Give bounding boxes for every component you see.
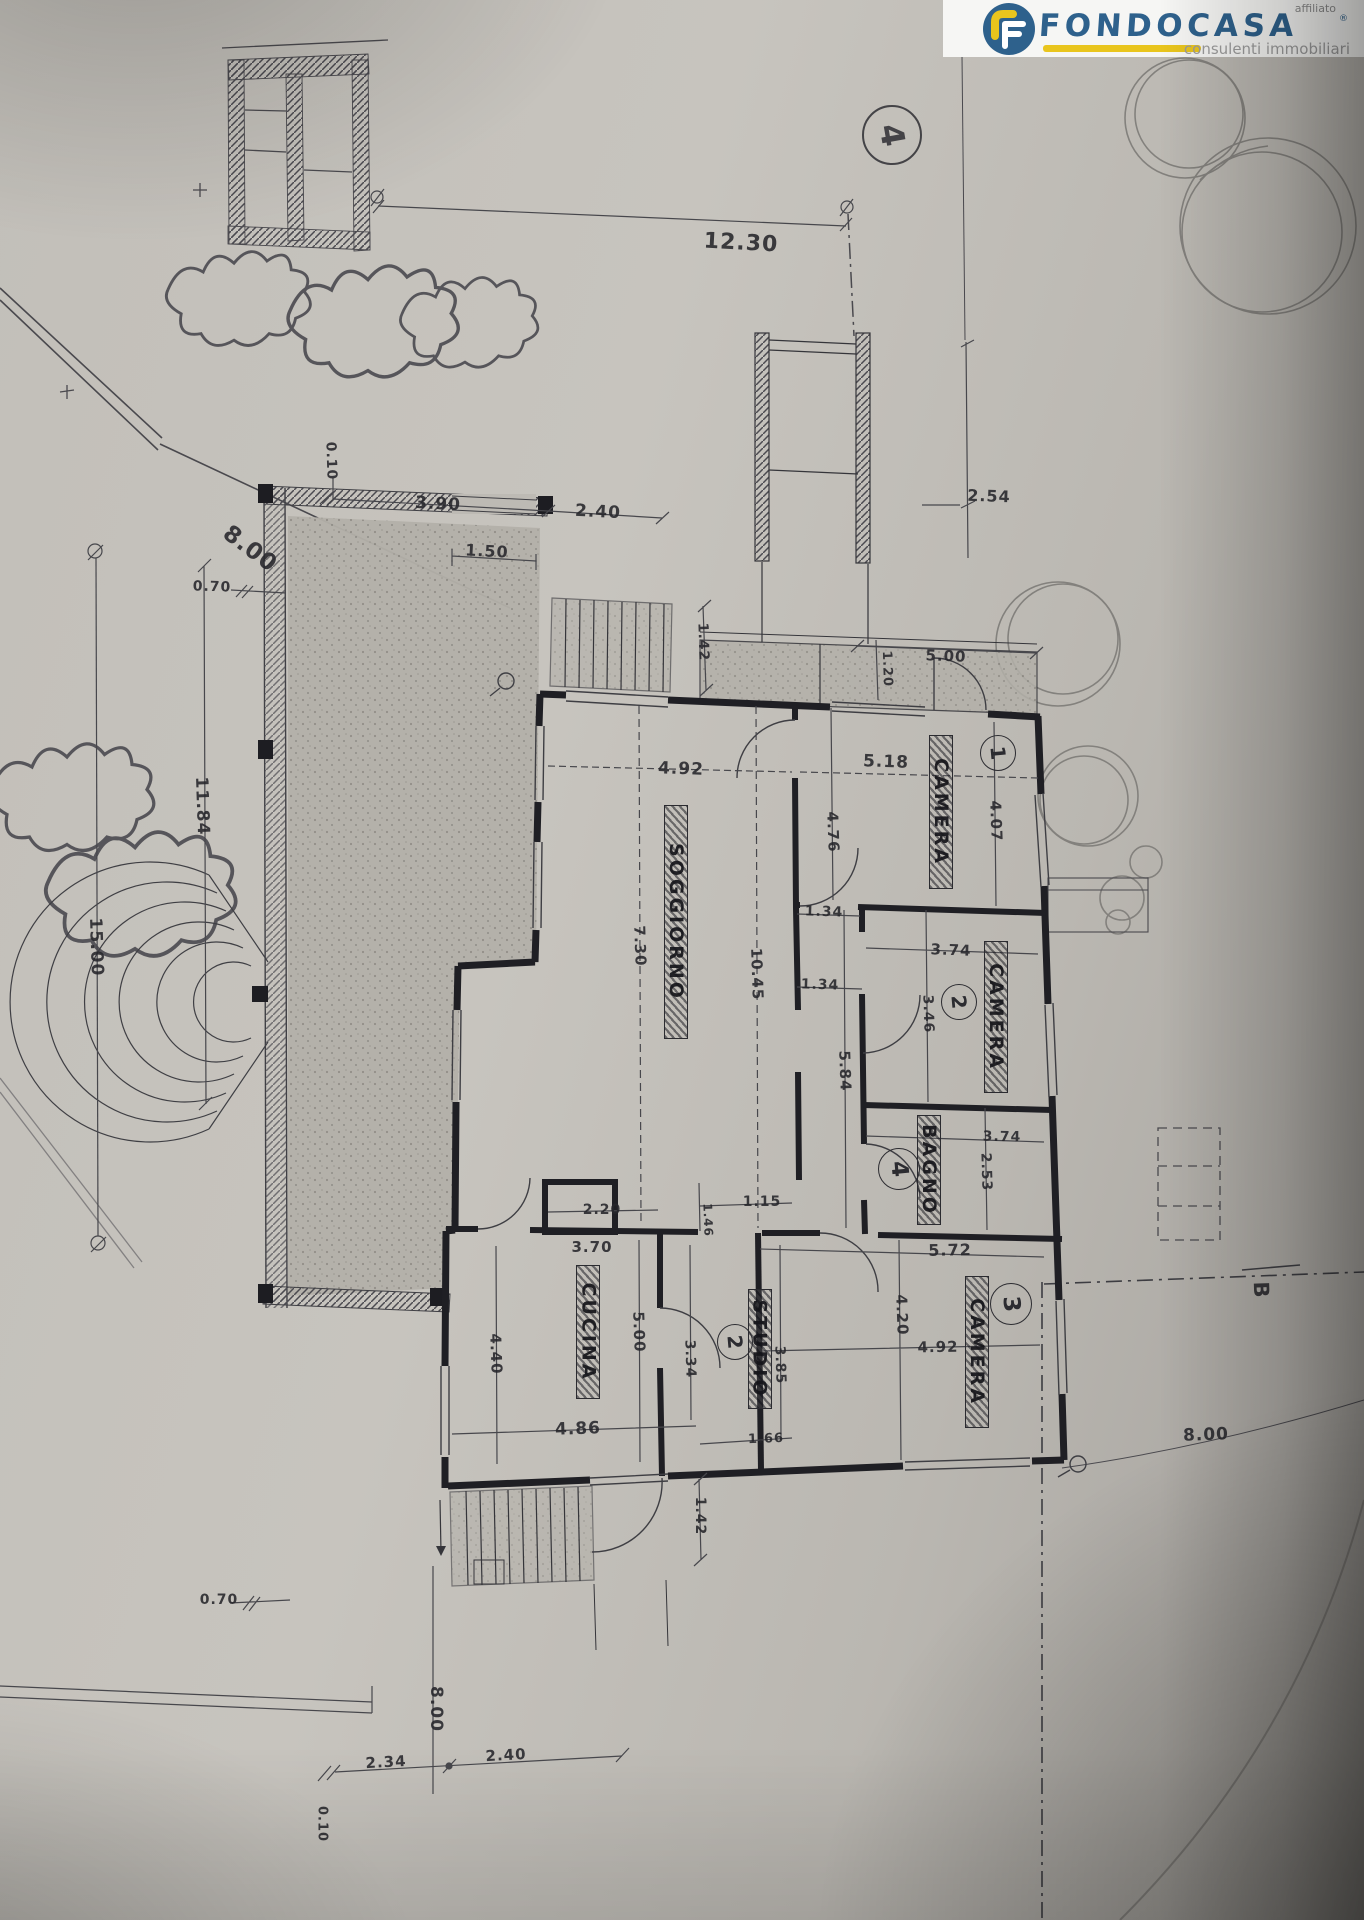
dimension-label: 4.92 bbox=[917, 1338, 958, 1357]
boundary-lines bbox=[0, 56, 965, 608]
dimension-label: 4.92 bbox=[658, 758, 705, 780]
dimension-label: 8.00 bbox=[1183, 1424, 1230, 1446]
dimension-label: 1.42 bbox=[692, 1497, 708, 1536]
terrace-floor bbox=[288, 516, 540, 1296]
room-label: CUCINA bbox=[576, 1265, 600, 1399]
dimension-label: 0.70 bbox=[192, 578, 231, 595]
balcony-outline bbox=[1048, 878, 1148, 932]
dimension-label: 3.85 bbox=[771, 1345, 788, 1384]
curved-stairs bbox=[10, 862, 268, 1142]
door-swing-south bbox=[592, 1478, 662, 1552]
room-label: CAMERA bbox=[965, 1276, 989, 1428]
room-number-mark: 4 bbox=[878, 1148, 920, 1190]
section-line-B bbox=[1042, 1265, 1364, 1920]
room-label: CAMERA bbox=[984, 941, 1008, 1093]
dimension-label: 8.00 bbox=[426, 1686, 446, 1732]
sheet-number: 4 bbox=[871, 121, 912, 150]
door-swing-soggiorno bbox=[737, 720, 795, 778]
door-swing-cucina bbox=[478, 1178, 530, 1229]
window-west-4 bbox=[441, 1366, 449, 1455]
section-line-A bbox=[848, 214, 854, 336]
dimension-label: 3.74 bbox=[983, 1129, 1022, 1146]
entry-door-north bbox=[566, 691, 668, 707]
dimension-label: 2.34 bbox=[365, 1752, 407, 1772]
dimension-label: 3.46 bbox=[919, 994, 936, 1033]
dimension-label: 1.66 bbox=[748, 1431, 785, 1447]
door-swing-camera1 bbox=[800, 848, 858, 906]
room-label: SOGGIORNO bbox=[664, 805, 688, 1039]
dimension-label: B bbox=[1249, 1281, 1274, 1299]
dimension-label: 10.45 bbox=[747, 947, 767, 1000]
south-stairs bbox=[436, 1486, 668, 1650]
dimension-label: 2.54 bbox=[967, 486, 1011, 507]
dimension-label: 5.84 bbox=[835, 1050, 854, 1092]
window-east-1 bbox=[1035, 793, 1049, 887]
accent-bar bbox=[1043, 45, 1201, 52]
dimension-label: 1.15 bbox=[743, 1194, 782, 1210]
door-swing-camera2 bbox=[863, 995, 920, 1053]
dimension-label: 3.74 bbox=[930, 940, 972, 959]
fondocasa-f-icon bbox=[981, 2, 1037, 58]
room-number-mark: 3 bbox=[990, 1283, 1032, 1325]
window-east-3 bbox=[1056, 1299, 1067, 1395]
dimension-label: 2.20 bbox=[583, 1202, 622, 1218]
dimension-label: 2.40 bbox=[485, 1745, 527, 1765]
registered-mark: ® bbox=[1339, 14, 1348, 24]
north-stairs bbox=[550, 598, 672, 692]
dimension-label: 7.30 bbox=[630, 925, 649, 967]
affiliato-label: affiliato bbox=[1295, 2, 1336, 15]
dimension-label: 1.34 bbox=[800, 976, 839, 993]
dimension-label: 4.76 bbox=[823, 811, 842, 853]
dimension-label: 11.84 bbox=[191, 776, 213, 835]
room-label: STUDIO bbox=[748, 1289, 772, 1409]
logo-tagline: consulenti immobiliari bbox=[1184, 40, 1350, 58]
door-hook-symbol-se bbox=[1070, 1456, 1086, 1472]
dimension-label: 1.34 bbox=[804, 903, 843, 920]
room-number-mark: 2 bbox=[941, 984, 977, 1020]
dimension-label: 4.20 bbox=[892, 1294, 911, 1336]
dimension-label: 0.10 bbox=[322, 441, 339, 480]
dimension-label: 5.00 bbox=[629, 1311, 648, 1353]
dimension-label: 0.10 bbox=[315, 1806, 330, 1842]
dimension-label: 3.90 bbox=[415, 493, 462, 515]
dimension-label: 1.46 bbox=[700, 1203, 715, 1237]
dimension-label: 5.72 bbox=[928, 1240, 972, 1260]
room-label: CAMERA bbox=[929, 735, 953, 889]
brand-wordmark: FONDOCASA bbox=[1038, 8, 1300, 44]
dimension-label: 1.42 bbox=[694, 622, 711, 661]
window-south bbox=[905, 1458, 1030, 1470]
dimension-label: 4.86 bbox=[555, 1418, 602, 1440]
trees bbox=[996, 58, 1356, 934]
dimension-label: 12.30 bbox=[703, 229, 779, 258]
dimension-label: 5.00 bbox=[925, 646, 967, 665]
pergola-dashed-outline bbox=[1048, 878, 1220, 1240]
west-terrace bbox=[10, 484, 553, 1312]
dimension-label: 0.70 bbox=[200, 1592, 239, 1608]
dimension-label: 1.20 bbox=[879, 651, 895, 688]
entry-walkway bbox=[755, 333, 870, 644]
window-east-2 bbox=[1045, 1003, 1057, 1097]
room-label: BAGNO bbox=[917, 1115, 941, 1225]
dimension-label: 3.70 bbox=[571, 1238, 612, 1256]
page-curl-edge bbox=[1120, 1500, 1364, 1920]
stair-direction-arrow bbox=[436, 1546, 446, 1556]
dimension-label: 3.34 bbox=[681, 1339, 698, 1378]
dimension-label: 4.07 bbox=[986, 800, 1005, 842]
fondocasa-logo: FONDOCASA affiliato ® consulenti immobil… bbox=[943, 0, 1364, 57]
room-number-mark: 1 bbox=[980, 735, 1016, 771]
door-swing-camera3 bbox=[820, 1233, 878, 1292]
windows-and-doors bbox=[441, 658, 1086, 1552]
scanned-floor-plan-photo: 12.302.540.103.902.408.001.500.701.425.0… bbox=[0, 0, 1364, 1920]
dimension-label: 1.50 bbox=[465, 540, 509, 561]
door-south bbox=[590, 1474, 668, 1485]
dimension-label: 2.40 bbox=[575, 501, 622, 523]
dimension-label: 5.18 bbox=[863, 751, 910, 773]
sheet-number-badge: 4 bbox=[862, 105, 922, 165]
dimension-label: 15.00 bbox=[85, 917, 107, 976]
dimension-label: 2.53 bbox=[977, 1152, 994, 1191]
dimension-label: 4.40 bbox=[486, 1333, 505, 1375]
room-number-mark: 2 bbox=[717, 1324, 753, 1360]
